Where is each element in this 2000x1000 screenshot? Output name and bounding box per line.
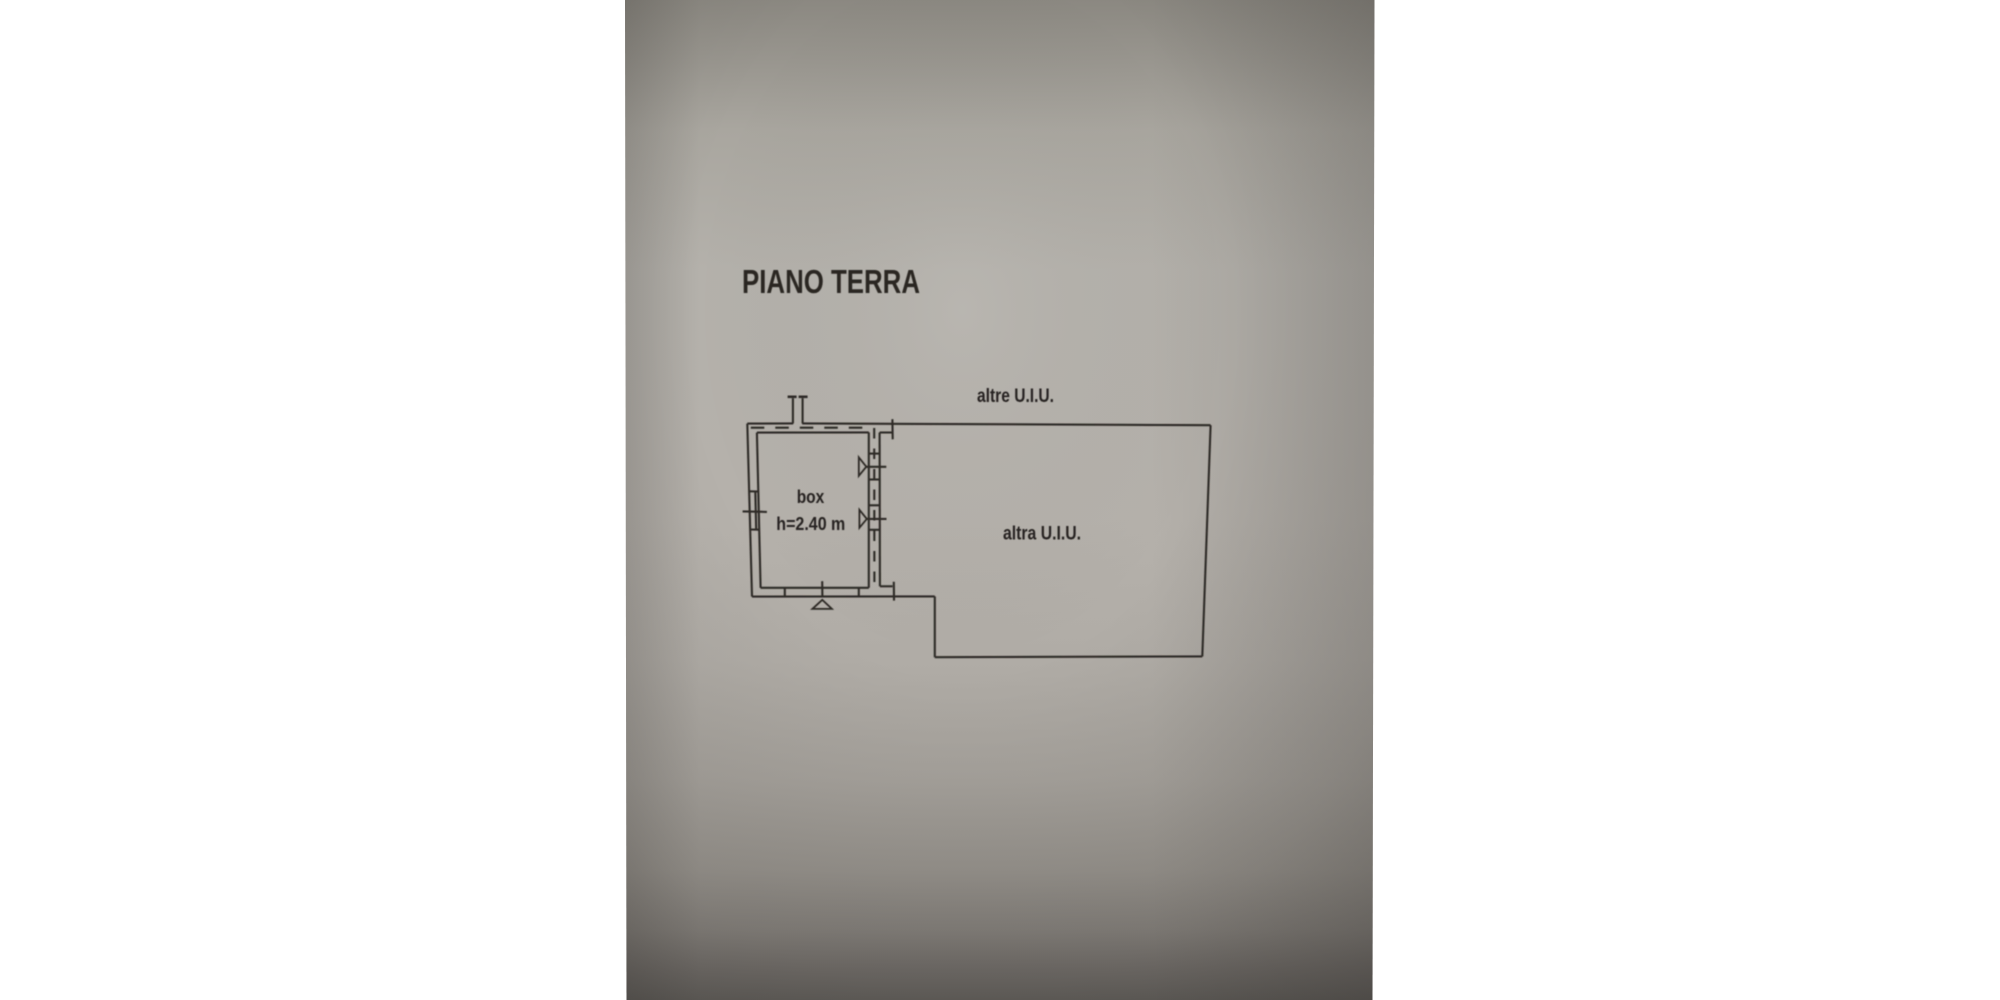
- svg-text:altra U.I.U.: altra U.I.U.: [1003, 524, 1081, 545]
- svg-text:box: box: [797, 486, 825, 507]
- svg-text:altre U.I.U.: altre U.I.U.: [977, 386, 1054, 407]
- svg-text:PIANO TERRA: PIANO TERRA: [742, 263, 920, 300]
- svg-text:h=2.40 m: h=2.40 m: [776, 513, 845, 534]
